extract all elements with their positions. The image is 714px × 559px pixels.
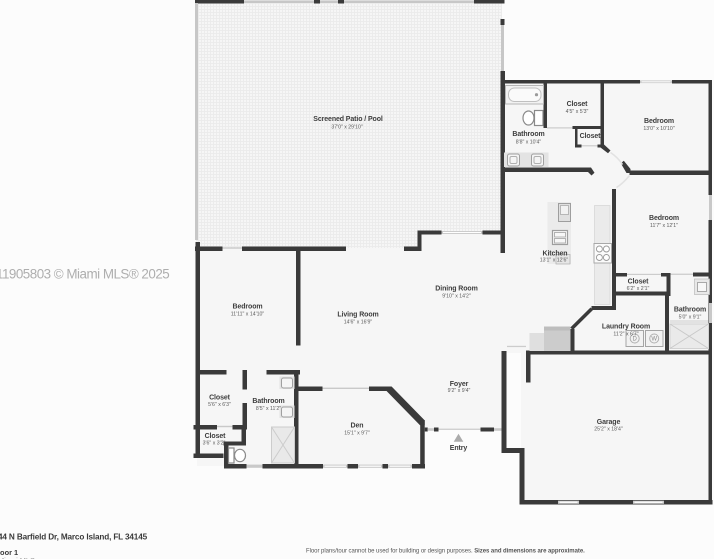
svg-text:9'10" x 14'2": 9'10" x 14'2" — [442, 294, 471, 300]
svg-text:5'6" x 6'3": 5'6" x 6'3" — [208, 402, 231, 408]
svg-text:15'1" x 9'7": 15'1" x 9'7" — [344, 431, 370, 437]
svg-text:Closet: Closet — [580, 133, 602, 140]
svg-text:Entry: Entry — [450, 445, 468, 452]
svg-text:Bedroom: Bedroom — [232, 304, 262, 311]
svg-text:4'5" x 5'3": 4'5" x 5'3" — [566, 109, 589, 115]
svg-text:Living Room: Living Room — [337, 312, 378, 319]
svg-text:37'0" x 29'10": 37'0" x 29'10" — [331, 125, 362, 131]
svg-text:Bathroom: Bathroom — [252, 398, 284, 405]
svg-text:11'7" x 12'1": 11'7" x 12'1" — [650, 223, 678, 229]
svg-text:Closet: Closet — [567, 101, 589, 108]
svg-text:5'0" x 9'1": 5'0" x 9'1" — [679, 315, 702, 321]
svg-text:6'2" x 2'1": 6'2" x 2'1" — [627, 286, 650, 292]
svg-text:8'5" x 11'2": 8'5" x 11'2" — [256, 406, 281, 412]
svg-text:9'2" x 9'4": 9'2" x 9'4" — [448, 388, 471, 394]
svg-text:11905803 © Miami MLS® 2025: 11905803 © Miami MLS® 2025 — [0, 267, 169, 282]
svg-text:14'6" x 16'9": 14'6" x 16'9" — [344, 320, 373, 326]
svg-text:13'1" x 12'6": 13'1" x 12'6" — [540, 258, 569, 264]
svg-text:13'0" x 10'10": 13'0" x 10'10" — [643, 126, 674, 132]
svg-text:W: W — [651, 337, 657, 343]
svg-text:Garage: Garage — [597, 419, 621, 426]
svg-text:Screened Patio / Pool: Screened Patio / Pool — [313, 116, 383, 123]
svg-text:Dining Room: Dining Room — [435, 286, 477, 293]
svg-text:Bedroom: Bedroom — [649, 215, 679, 222]
svg-text:D: D — [633, 337, 638, 343]
svg-text:44 N Barfield Dr, Marco Island: 44 N Barfield Dr, Marco Island, FL 34145 — [0, 533, 148, 542]
svg-text:Closet: Closet — [209, 395, 231, 402]
svg-text:3'6" x 3'2": 3'6" x 3'2" — [203, 440, 226, 446]
svg-text:Den: Den — [351, 423, 364, 430]
svg-text:Closet: Closet — [628, 279, 650, 286]
svg-text:Closet: Closet — [205, 433, 227, 440]
svg-text:11'11" x 14'10": 11'11" x 14'10" — [231, 312, 265, 318]
svg-text:8'8" x 10'4": 8'8" x 10'4" — [516, 140, 542, 146]
svg-text:Foyer: Foyer — [450, 381, 469, 388]
svg-text:11'2" x 6'7": 11'2" x 6'7" — [613, 332, 638, 338]
svg-text:Laundry Room: Laundry Room — [602, 324, 650, 331]
svg-text:Bedroom: Bedroom — [644, 118, 674, 125]
svg-text:Bathroom: Bathroom — [512, 131, 544, 138]
svg-text:Kitchen: Kitchen — [543, 251, 568, 258]
svg-text:Floor plans/tour cannot be use: Floor plans/tour cannot be used for buil… — [306, 549, 585, 555]
svg-text:Bathroom: Bathroom — [674, 307, 706, 314]
svg-text:25'2" x 18'4": 25'2" x 18'4" — [594, 427, 623, 433]
